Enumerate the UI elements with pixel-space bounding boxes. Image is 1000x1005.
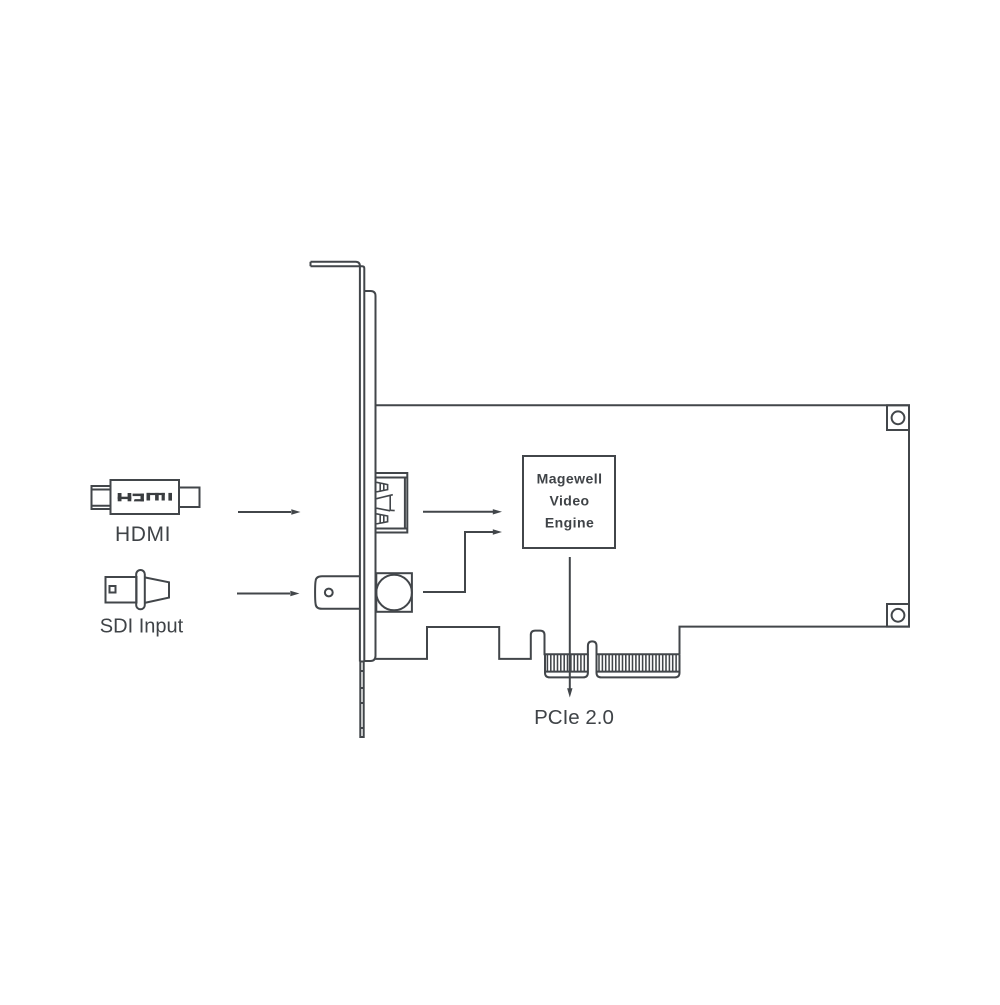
svg-text:Engine: Engine: [545, 515, 594, 531]
svg-text:PCIe 2.0: PCIe 2.0: [534, 706, 614, 729]
svg-text:HDMI: HDMI: [115, 523, 171, 546]
svg-text:SDI Input: SDI Input: [100, 616, 184, 638]
svg-text:Video: Video: [549, 492, 589, 508]
svg-text:Magewell: Magewell: [537, 470, 603, 486]
